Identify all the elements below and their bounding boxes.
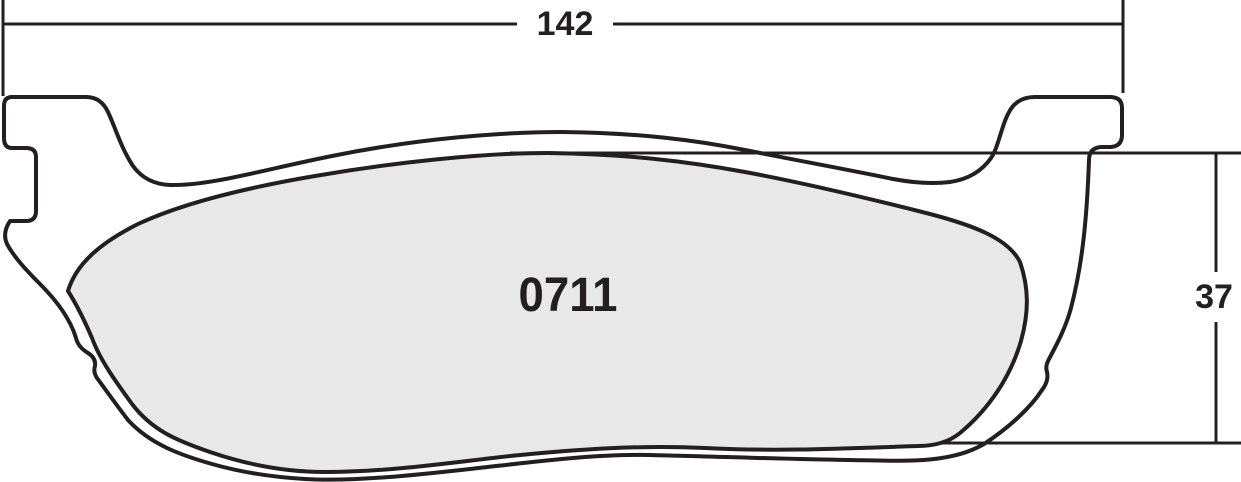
part-number-label: 0711	[519, 272, 618, 320]
height-dimension-label: 37	[1195, 280, 1233, 314]
brake-pad-drawing: 142 37 0711	[0, 0, 1241, 482]
drawing-canvas	[0, 0, 1241, 482]
width-dimension-label: 142	[537, 7, 594, 41]
